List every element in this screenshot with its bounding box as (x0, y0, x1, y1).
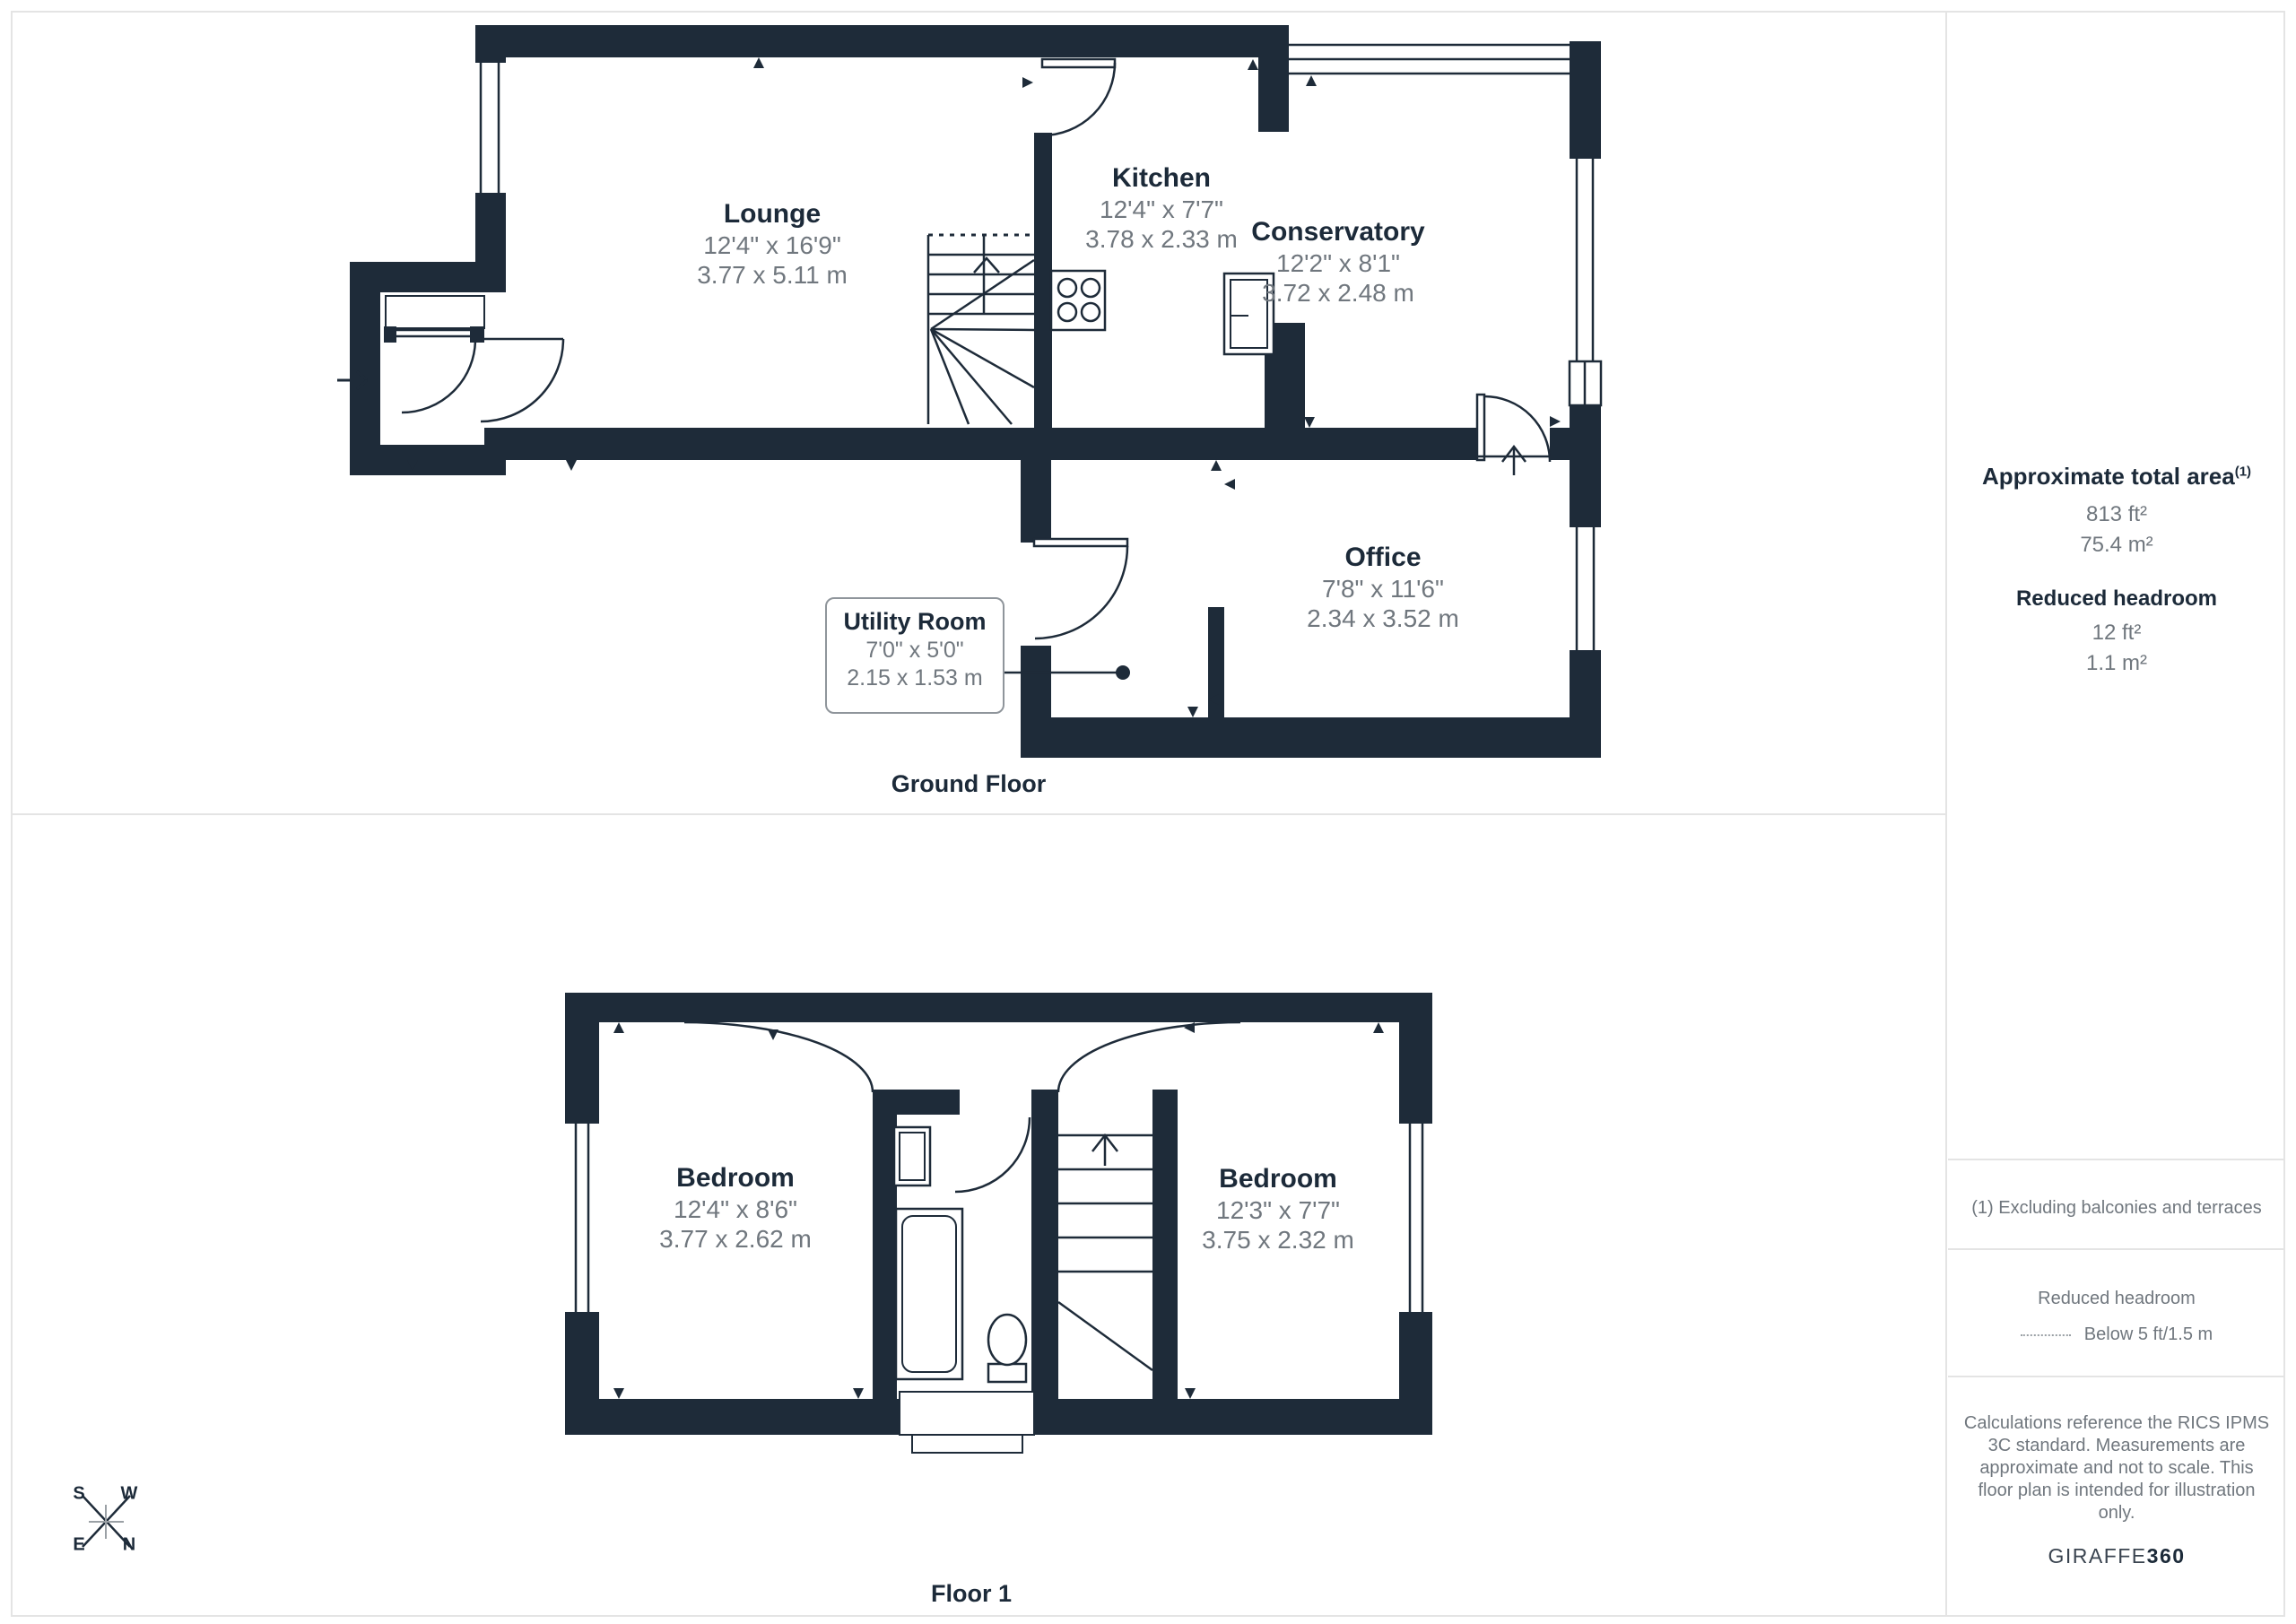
total-area-imperial: 813 ft² (2086, 502, 2147, 527)
total-area-heading: Approximate total area(1) (1982, 463, 2251, 491)
room-label-lounge: Lounge 12'4" x 16'9" 3.77 x 5.11 m (697, 198, 848, 290)
room-label-utility-callout: Utility Room 7'0" x 5'0" 2.15 x 1.53 m (825, 597, 1004, 714)
room-dim-imperial: 7'8" x 11'6" (1307, 574, 1459, 604)
room-dim-metric: 3.72 x 2.48 m (1251, 278, 1424, 308)
hob-icon (1051, 271, 1105, 330)
reduced-headroom-metric: 1.1 m² (2086, 651, 2147, 676)
room-name: Conservatory (1251, 216, 1424, 248)
room-name: Kitchen (1085, 162, 1238, 195)
room-dim-imperial: 12'2" x 8'1" (1251, 248, 1424, 278)
room-label-kitchen: Kitchen 12'4" x 7'7" 3.78 x 2.33 m (1085, 162, 1238, 254)
room-dim-imperial: 12'4" x 8'6" (659, 1194, 812, 1224)
kitchen-door (1042, 59, 1115, 135)
room-name: Lounge (697, 198, 848, 230)
toilet-icon (988, 1315, 1026, 1382)
room-dim-imperial: 12'4" x 16'9" (697, 230, 848, 260)
bathtub-icon (896, 1209, 962, 1379)
chimney-notch (900, 1392, 1034, 1453)
utility-door (1034, 539, 1127, 638)
room-name: Bedroom (1202, 1163, 1354, 1195)
stairs-floor1 (1058, 1135, 1152, 1370)
room-dim-metric: 3.77 x 2.62 m (659, 1224, 812, 1254)
reduced-headroom-heading: Reduced headroom (2016, 586, 2217, 612)
stairs-ground-floor (928, 235, 1034, 424)
room-name: Bedroom (659, 1162, 812, 1194)
compass-north: N (123, 1535, 135, 1556)
room-label-office: Office 7'8" x 11'6" 2.34 x 3.52 m (1307, 542, 1459, 633)
room-label-bedroom-left: Bedroom 12'4" x 8'6" 3.77 x 2.62 m (659, 1162, 812, 1254)
legend-title: Reduced headroom (2038, 1289, 2196, 1309)
compass-west: W (121, 1484, 138, 1505)
conservatory-door (1477, 395, 1550, 475)
area-footnote: (1) Excluding balconies and terraces (1971, 1198, 2262, 1219)
room-dim-metric: 3.78 x 2.33 m (1085, 224, 1238, 254)
entrance-porch (386, 296, 563, 421)
room-dim-metric: 2.34 x 3.52 m (1307, 604, 1459, 633)
total-area-metric: 75.4 m² (2080, 533, 2152, 558)
giraffe360-logo: GIRAFFE360 (2048, 1544, 2185, 1568)
reduced-headroom-imperial: 12 ft² (2092, 621, 2142, 646)
room-dim-metric: 3.75 x 2.32 m (1202, 1225, 1354, 1255)
room-name: Office (1307, 542, 1459, 574)
legend-entry: Below 5 ft/1.5 m (2084, 1324, 2213, 1345)
room-dim-imperial: 12'3" x 7'7" (1202, 1195, 1354, 1225)
room-dim-imperial: 7'0" x 5'0" (827, 637, 1003, 664)
room-dim-metric: 2.15 x 1.53 m (827, 664, 1003, 692)
room-dim-metric: 3.77 x 5.11 m (697, 260, 848, 290)
room-label-bedroom-right: Bedroom 12'3" x 7'7" 3.75 x 2.32 m (1202, 1163, 1354, 1255)
legend-row: Below 5 ft/1.5 m (2021, 1324, 2213, 1345)
footnote-marker: (1) (2235, 464, 2251, 479)
disclaimer-text: Calculations reference the RICS IPMS 3C … (1962, 1412, 2272, 1524)
total-area-heading-text: Approximate total area (1982, 463, 2235, 490)
floorplan-page: Lounge 12'4" x 16'9" 3.77 x 5.11 m Kitch… (0, 0, 2296, 1624)
room-name: Utility Room (827, 606, 1003, 637)
bathroom-sink-icon (894, 1127, 930, 1185)
ground-floor-caption: Ground Floor (891, 770, 1046, 798)
compass-south: S (73, 1484, 84, 1505)
brand-regular: GIRAFFE (2048, 1544, 2146, 1568)
room-label-conservatory: Conservatory 12'2" x 8'1" 3.72 x 2.48 m (1251, 216, 1424, 308)
room-dim-imperial: 12'4" x 7'7" (1085, 195, 1238, 224)
brand-bold: 360 (2147, 1544, 2186, 1568)
floor1-caption: Floor 1 (931, 1580, 1012, 1608)
dotted-line-icon (2021, 1334, 2071, 1336)
compass-east: E (73, 1535, 84, 1556)
